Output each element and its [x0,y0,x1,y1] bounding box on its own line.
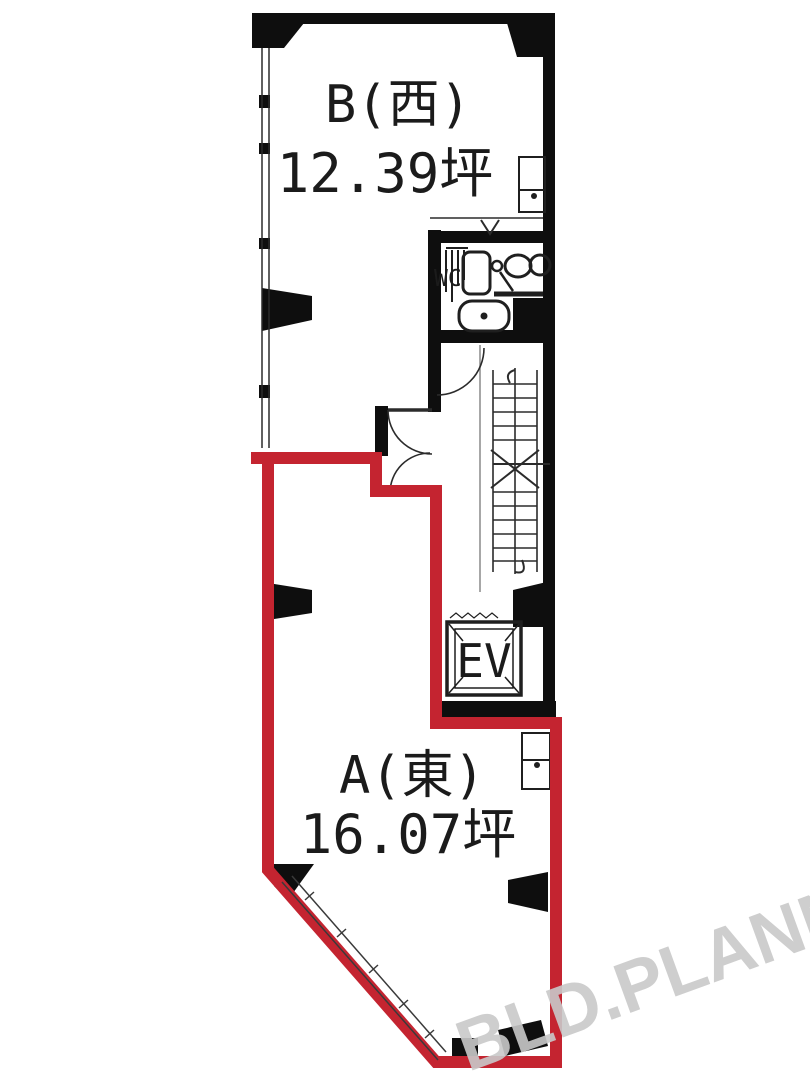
stair-rails [493,368,537,574]
pipe-box-unit-b-dot [531,193,537,199]
toilet-cistern [463,252,490,294]
wc-valve [492,261,502,271]
unit-b-area-label: 12.39坪 [277,142,494,205]
pier-unit-a-left [268,583,312,620]
unit-a-name-label: A(東) [339,746,485,806]
wall-wc-divider [428,230,441,412]
wc-faucet [481,313,488,320]
ev-door-zigzag [450,613,498,618]
watermark-text: BLD.PLANNER [446,835,810,1080]
floorplan-svg: B(西) 12.39坪 A(東) 16.07坪 WC EV BLD.PLANNE… [0,0,810,1080]
wall-door-jamb [375,406,388,456]
pier-unit-a-right [508,872,548,912]
unit-a-area-label: 16.07坪 [300,803,517,866]
unit-b-name-label: B(西) [325,75,471,135]
wc-label: WC [434,266,462,292]
wall-ev-bottom [436,701,556,717]
pipe-box-unit-b [519,157,545,212]
ev-label: EV [456,634,511,688]
diagonal-window-lines [282,876,446,1060]
wc-pipe-shaft [513,298,544,330]
pipe-box-unit-a-dot [534,762,540,768]
toilet-bowl [505,255,531,277]
wall-corner-top-left [252,13,312,48]
door-swing-wc [437,348,484,395]
floorplan-page: B(西) 12.39坪 A(東) 16.07坪 WC EV BLD.PLANNE… [0,0,810,1080]
wall-stair-pier [513,580,555,627]
stairwell [491,368,550,574]
door-swing-unit-b [388,410,432,454]
stair-break-cross [491,450,550,488]
stair-arrow-bottom [515,560,524,573]
stair-arrow-top [508,370,515,383]
